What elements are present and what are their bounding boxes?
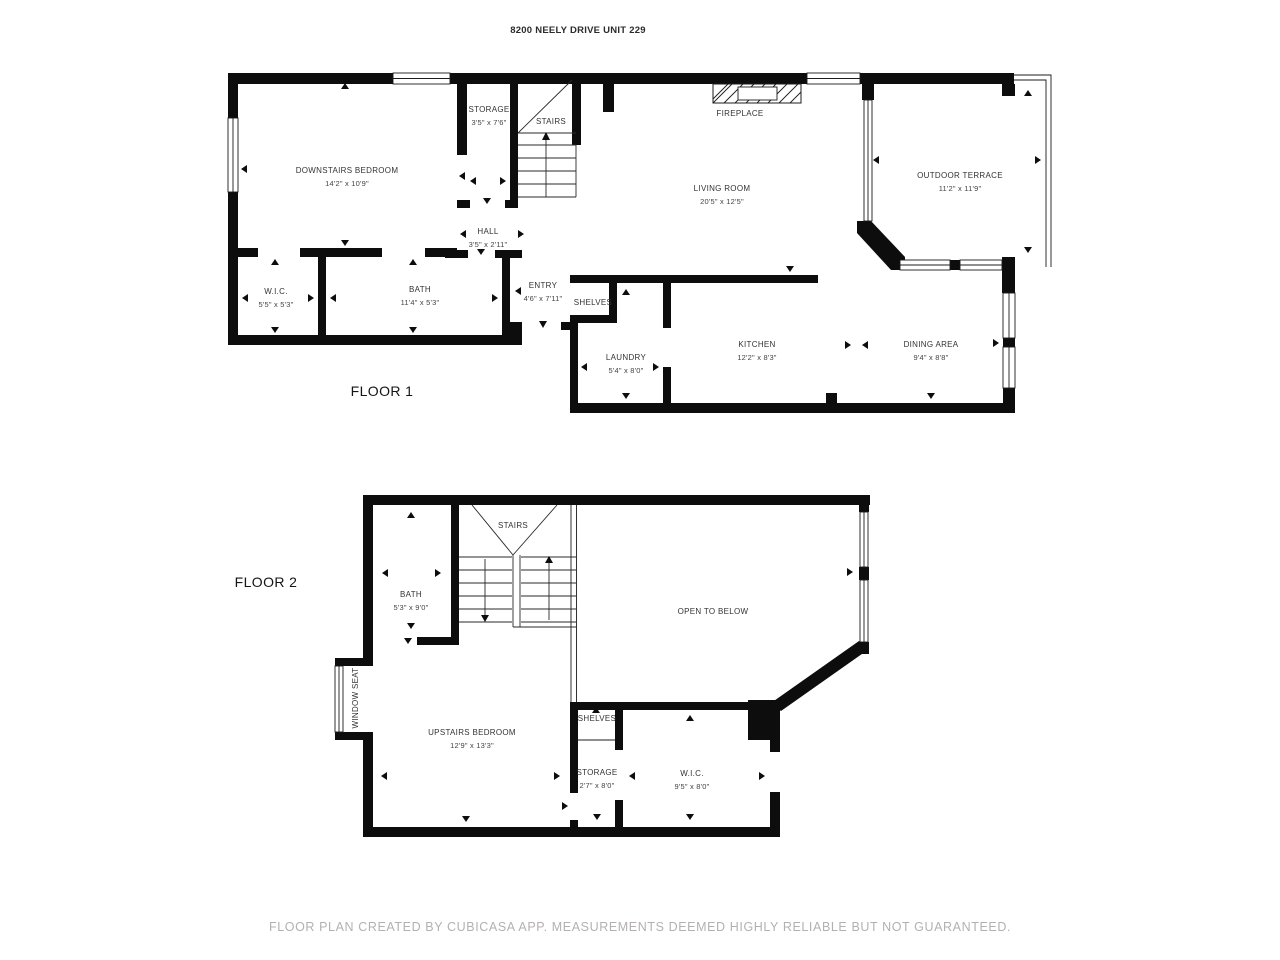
svg-text:KITCHEN: KITCHEN bbox=[738, 340, 775, 349]
window bbox=[807, 73, 860, 84]
floor2-label: FLOOR 2 bbox=[235, 574, 298, 590]
svg-text:UPSTAIRS BEDROOM: UPSTAIRS BEDROOM bbox=[428, 728, 516, 737]
room-label-laundry: LAUNDRY 5'4" x 8'0" bbox=[606, 353, 647, 375]
svg-text:STORAGE: STORAGE bbox=[468, 105, 509, 114]
window bbox=[960, 260, 1002, 270]
room-label-fireplace: FIREPLACE bbox=[716, 109, 763, 118]
svg-text:FIREPLACE: FIREPLACE bbox=[716, 109, 763, 118]
fireplace-symbol bbox=[713, 84, 801, 103]
svg-text:5'3" x 9'0": 5'3" x 9'0" bbox=[394, 603, 429, 612]
svg-text:14'2" x 10'9": 14'2" x 10'9" bbox=[325, 179, 369, 188]
window bbox=[864, 100, 872, 221]
room-label-storage-f1: STORAGE 3'5" x 7'6" bbox=[468, 105, 509, 127]
svg-text:W.I.C.: W.I.C. bbox=[264, 287, 288, 296]
window bbox=[1003, 293, 1015, 338]
svg-text:12'9" x 13'3": 12'9" x 13'3" bbox=[450, 741, 494, 750]
svg-text:STAIRS: STAIRS bbox=[498, 521, 528, 530]
svg-text:9'4" x 8'8": 9'4" x 8'8" bbox=[914, 353, 949, 362]
room-label-upstairs-bedroom: UPSTAIRS BEDROOM 12'9" x 13'3" bbox=[428, 728, 516, 750]
room-label-shelves-f2: SHELVES bbox=[578, 714, 616, 723]
window bbox=[228, 118, 238, 192]
svg-text:20'5" x 12'5": 20'5" x 12'5" bbox=[700, 197, 744, 206]
svg-text:OUTDOOR TERRACE: OUTDOOR TERRACE bbox=[917, 171, 1003, 180]
disclaimer-text: FLOOR PLAN CREATED BY CUBICASA APP. MEAS… bbox=[269, 920, 1011, 934]
svg-text:DOWNSTAIRS BEDROOM: DOWNSTAIRS BEDROOM bbox=[296, 166, 399, 175]
room-label-bath-f1: BATH 11'4" x 5'3" bbox=[401, 285, 440, 307]
svg-text:STAIRS: STAIRS bbox=[536, 117, 566, 126]
svg-text:HALL: HALL bbox=[477, 227, 498, 236]
room-label-living-room: LIVING ROOM 20'5" x 12'5" bbox=[694, 184, 751, 206]
svg-text:4'6" x 7'11": 4'6" x 7'11" bbox=[524, 294, 563, 303]
svg-text:W.I.C.: W.I.C. bbox=[680, 769, 704, 778]
room-label-dining-area: DINING AREA 9'4" x 8'8" bbox=[904, 340, 959, 362]
terrace-railing bbox=[1014, 75, 1051, 267]
room-label-outdoor-terrace: OUTDOOR TERRACE 11'2" x 11'9" bbox=[917, 171, 1003, 193]
svg-text:LAUNDRY: LAUNDRY bbox=[606, 353, 647, 362]
window bbox=[393, 73, 450, 84]
window bbox=[1003, 347, 1015, 388]
svg-text:3'5" x 2'11": 3'5" x 2'11" bbox=[469, 240, 508, 249]
window bbox=[860, 512, 868, 567]
svg-text:BATH: BATH bbox=[409, 285, 431, 294]
svg-text:3'5" x 7'6": 3'5" x 7'6" bbox=[472, 118, 507, 127]
floor1-label: FLOOR 1 bbox=[351, 383, 414, 399]
svg-text:BATH: BATH bbox=[400, 590, 422, 599]
window bbox=[900, 260, 950, 270]
window bbox=[860, 580, 868, 642]
room-label-wic-f2: W.I.C. 9'5" x 8'0" bbox=[675, 769, 710, 791]
window bbox=[335, 666, 343, 732]
svg-text:11'4" x 5'3": 11'4" x 5'3" bbox=[401, 298, 440, 307]
room-label-window-seat: WINDOW SEAT bbox=[351, 668, 360, 729]
room-label-wic-f1: W.I.C. 5'5" x 5'3" bbox=[259, 287, 294, 309]
room-label-hall: HALL 3'5" x 2'11" bbox=[469, 227, 508, 249]
room-label-stairs-f2: STAIRS bbox=[498, 521, 528, 530]
measurement-arrows-floor1 bbox=[241, 83, 1041, 399]
room-label-kitchen: KITCHEN 12'2" x 8'3" bbox=[737, 340, 776, 362]
svg-text:WINDOW SEAT: WINDOW SEAT bbox=[351, 668, 360, 729]
room-label-storage-f2: STORAGE 2'7" x 8'0" bbox=[576, 768, 617, 790]
room-label-downstairs-bedroom: DOWNSTAIRS BEDROOM 14'2" x 10'9" bbox=[296, 166, 399, 188]
room-label-bath-f2: BATH 5'3" x 9'0" bbox=[394, 590, 429, 612]
stairs-treads-floor1 bbox=[518, 80, 576, 197]
svg-text:5'5" x 5'3": 5'5" x 5'3" bbox=[259, 300, 294, 309]
svg-text:SHELVES: SHELVES bbox=[578, 714, 616, 723]
svg-text:5'4" x 8'0": 5'4" x 8'0" bbox=[609, 366, 644, 375]
svg-text:11'2" x 11'9": 11'2" x 11'9" bbox=[939, 184, 982, 193]
svg-text:9'5" x 8'0": 9'5" x 8'0" bbox=[675, 782, 710, 791]
room-label-open-to-below: OPEN TO BELOW bbox=[678, 607, 749, 616]
svg-text:2'7" x 8'0": 2'7" x 8'0" bbox=[580, 781, 615, 790]
page-title: 8200 NEELY DRIVE UNIT 229 bbox=[510, 25, 646, 36]
room-label-shelves-f1: SHELVES bbox=[574, 298, 612, 307]
floor-plan-canvas: 8200 NEELY DRIVE UNIT 229 bbox=[0, 0, 1280, 960]
room-label-stairs-f1: STAIRS bbox=[536, 117, 566, 126]
svg-text:12'2" x 8'3": 12'2" x 8'3" bbox=[737, 353, 776, 362]
svg-text:OPEN TO BELOW: OPEN TO BELOW bbox=[678, 607, 749, 616]
floor-plan-page: 8200 NEELY DRIVE UNIT 229 bbox=[0, 0, 1280, 960]
svg-text:STORAGE: STORAGE bbox=[576, 768, 617, 777]
room-label-entry: ENTRY 4'6" x 7'11" bbox=[524, 281, 563, 303]
svg-text:LIVING ROOM: LIVING ROOM bbox=[694, 184, 751, 193]
svg-text:ENTRY: ENTRY bbox=[529, 281, 558, 290]
svg-text:SHELVES: SHELVES bbox=[574, 298, 612, 307]
svg-text:DINING AREA: DINING AREA bbox=[904, 340, 959, 349]
